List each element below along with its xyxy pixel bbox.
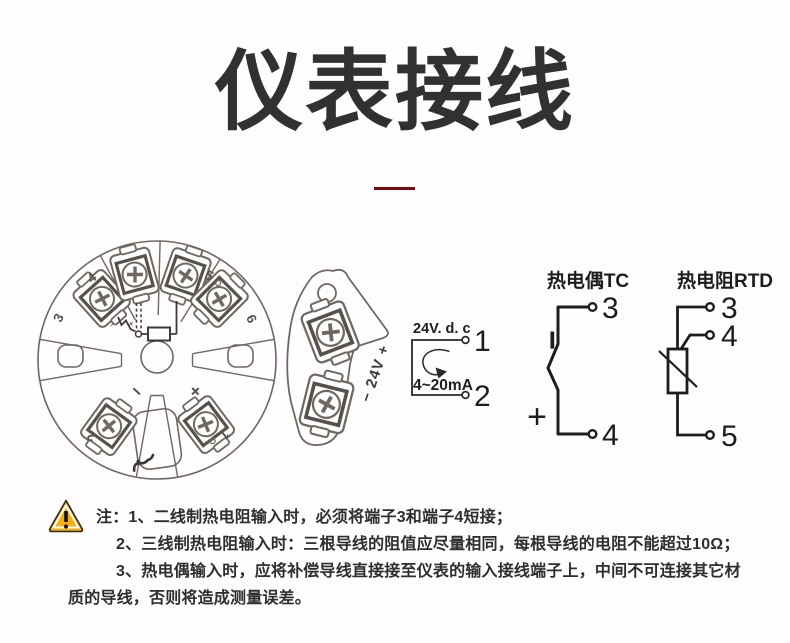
tc-diagram: 热电偶TC 3 4 − + [527,269,629,452]
tc-minus-label: − [533,330,571,350]
tc-terminal-3-number: 3 [602,292,619,325]
rtd-terminal-4-number: 4 [721,320,738,353]
rtd-resistor-body [668,349,687,393]
loop-terminal-2-number: 2 [474,380,491,413]
tc-title: 热电偶TC [547,269,630,292]
warning-exclamation-dot [64,525,68,529]
wiring-diagrams: − + 3 4 5 6 2 1 − + [0,240,790,490]
module-right-slot [228,345,253,367]
rtd-diagram: 热电阻RTD 3 4 5 [659,269,773,453]
side-24v-label: − 24V + [358,342,393,404]
warning-icon [47,497,85,535]
page-title: 仪表接线 [0,46,790,138]
note-line-1: 注：1、二线制热电阻输入时，必须将端子3和端子4短接； [96,503,512,527]
terminal-block-1 [173,389,240,459]
title-underline [374,187,415,190]
note-line-4: 质的导线，否则将造成测量误差。 [68,584,311,608]
rtd-terminal-5-dot [706,431,714,439]
module-center-hole [141,341,173,373]
side-terminal-block-upper [298,294,363,371]
module-top-view: − + 3 4 5 6 2 1 − + [38,241,276,479]
loop-direction-arrow [423,350,450,375]
module-label-3: 3 [50,310,67,324]
tc-wire [548,307,588,434]
module-side-view: − 24V + [287,270,393,445]
rtd-terminal-3-dot [706,303,714,311]
module-left-slot [58,345,83,367]
loop-power-diagram: 24V. d. c 4~20mA 1 2 [412,321,491,413]
loop-supply-label: 24V. d. c [413,321,471,337]
module-outer-rim [38,241,276,479]
loop-current-label: 4~20mA [413,377,473,394]
rtd-terminal-5-number: 5 [721,420,738,453]
tc-terminal-4-number: 4 [602,419,619,452]
page: 仪表接线 [0,0,790,643]
tc-terminal-3-dot [589,303,597,311]
module-minus-label: − [126,380,147,402]
note-line-2: 2、三线制热电阻输入时：三根导线的阻值应尽量相同，每根导线的电阻不能超过10Ω； [116,530,740,554]
rtd-terminal-4-dot [706,331,714,339]
loop-terminal-1-dot [462,337,469,344]
loop-terminal-1-number: 1 [474,325,491,358]
note-line-3: 3、热电偶输入时，应将补偿导线直接接至仪表的输入接线端子上，中间不可连接其它材 [116,557,741,581]
tc-plus-label: + [527,398,547,436]
module-label-6: 6 [243,312,260,326]
rtd-title: 热电阻RTD [677,269,773,292]
terminal-block-2 [76,391,142,461]
tc-terminal-4-dot [589,430,597,438]
